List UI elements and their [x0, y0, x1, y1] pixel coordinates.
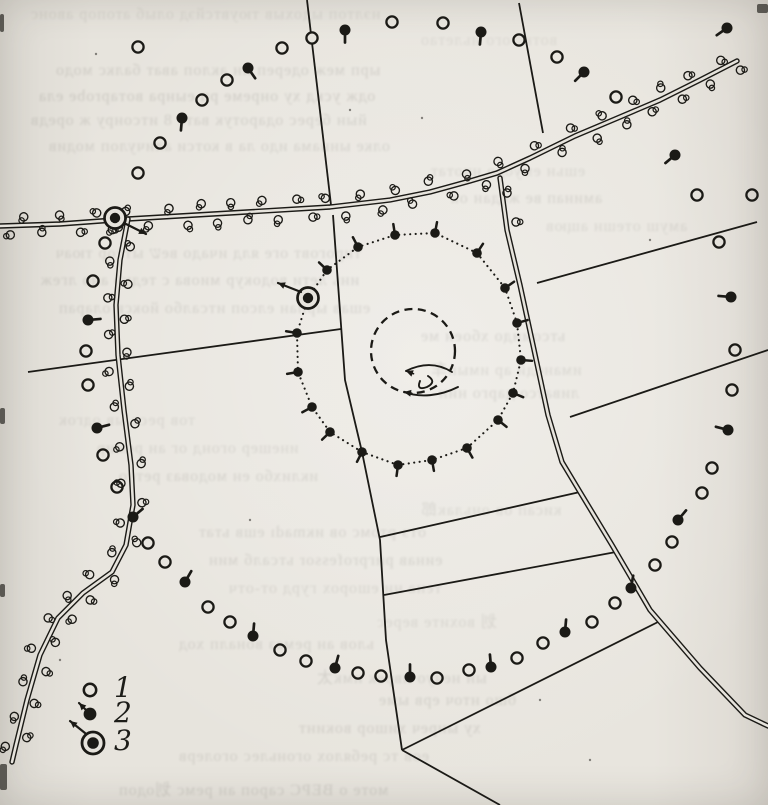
tree-circle — [696, 487, 707, 498]
legend-label-3: 3 — [114, 727, 132, 755]
trail-dot — [430, 222, 440, 238]
tree-circle — [437, 17, 448, 28]
marked-dot — [575, 67, 589, 81]
marked-dot — [330, 656, 341, 674]
tree-circle — [97, 449, 108, 460]
marked-dot — [248, 624, 259, 642]
tree-circle — [352, 667, 363, 678]
tree-circle — [154, 137, 165, 148]
trail-dot — [427, 455, 437, 471]
tree-circle — [274, 644, 285, 655]
shrub-icon — [119, 313, 132, 326]
marked-dot — [405, 665, 416, 683]
tree-circle — [375, 670, 386, 681]
shrub-icon — [22, 732, 33, 743]
shrub-icon — [135, 456, 148, 469]
shrub-icon — [0, 741, 11, 753]
shrub-icon — [194, 198, 207, 210]
tree-circle — [276, 42, 287, 53]
tree-circle — [87, 275, 98, 286]
shrub-icon — [422, 174, 435, 187]
trail-dot — [390, 224, 400, 240]
shrub-icon — [120, 277, 134, 291]
shrub-icon — [493, 157, 503, 168]
legend-control-point — [70, 721, 104, 754]
tree-circle — [729, 344, 740, 355]
trail-dot — [357, 447, 367, 462]
tree-circle — [610, 91, 621, 102]
tree-circle — [511, 652, 522, 663]
tree-circle — [80, 345, 91, 356]
shrub-icon — [104, 329, 116, 340]
tree-circle-on-line — [513, 34, 524, 45]
shrub-icon — [125, 240, 135, 250]
shrub-icon — [648, 106, 659, 117]
trail-dot — [472, 244, 483, 258]
trail-dot — [500, 282, 514, 293]
road-main-road — [0, 61, 737, 226]
shrub-icon — [446, 189, 460, 203]
control-points — [105, 208, 319, 309]
tree-circle — [746, 189, 757, 200]
road-south-road — [500, 178, 768, 726]
trail-dot — [493, 415, 506, 427]
shrub-icon — [66, 615, 77, 625]
shrub-icon — [123, 378, 137, 392]
tree-circle — [713, 236, 724, 247]
shrub-icon — [108, 399, 122, 412]
resting-circle — [371, 309, 458, 397]
shrub-icon — [103, 255, 116, 268]
shrub-icon — [75, 226, 88, 239]
marked-dot — [92, 423, 110, 434]
roadside-shrubs — [0, 54, 748, 753]
legend-label-2: 2 — [114, 699, 132, 727]
shrub-icon — [102, 366, 114, 377]
shrub-icon — [54, 210, 65, 222]
tree-circle — [609, 597, 620, 608]
trail-dot — [319, 262, 332, 274]
shrub-icon — [376, 205, 389, 217]
tree-circle — [537, 637, 548, 648]
trail-dot — [287, 367, 303, 377]
shrub-icon — [510, 215, 524, 229]
marked-dot — [486, 655, 497, 673]
shrub-icon — [595, 109, 607, 121]
tree-circle — [221, 74, 232, 85]
scribble-arrows — [404, 365, 458, 396]
shrub-icon — [41, 666, 54, 679]
circling-trail — [286, 222, 532, 476]
shrub-icon — [407, 198, 417, 209]
control-point — [278, 282, 319, 308]
shrub-icon — [105, 545, 119, 559]
marked-dot — [560, 620, 571, 638]
legend-marked-dot — [79, 703, 96, 720]
shrub-icon — [654, 80, 667, 94]
tree-circle — [224, 616, 235, 627]
shrub-icon — [136, 496, 149, 509]
shrub-icon — [224, 197, 238, 211]
trail-dot — [516, 355, 532, 365]
marked-dot — [340, 25, 351, 43]
marked-dot — [673, 510, 687, 525]
trail-dot — [302, 402, 316, 412]
shrub-icon — [340, 211, 353, 224]
tree-circle — [159, 556, 170, 567]
shrub-icon — [683, 69, 696, 82]
shrub-icon — [130, 417, 142, 428]
marked-dot — [83, 315, 101, 326]
field-boundaries — [28, 0, 768, 805]
shrub-icon — [29, 697, 42, 711]
shrub-icon — [16, 674, 30, 688]
shrub-icon — [627, 94, 640, 107]
marked-dot — [717, 23, 733, 36]
tree-circle — [431, 672, 442, 683]
trail-dot — [462, 443, 472, 457]
tree-circle — [132, 167, 143, 178]
shrub-icon — [390, 184, 400, 195]
trail-dot — [508, 388, 523, 398]
shrub-icon — [183, 221, 194, 233]
marked-dot — [476, 27, 487, 45]
tree-circle — [196, 94, 207, 105]
trail-dot — [512, 318, 527, 328]
tree-circle — [463, 664, 474, 675]
tree-circle — [202, 601, 213, 612]
shrub-icon — [114, 443, 124, 453]
shrub-icon — [89, 206, 102, 219]
tree-circle — [386, 16, 397, 27]
marked-dot — [243, 63, 256, 79]
shrub-icon — [23, 641, 37, 654]
marked-dot — [180, 571, 192, 587]
shrub-icon — [353, 189, 366, 202]
shrub-icon — [82, 567, 95, 581]
tree-circle — [82, 379, 93, 390]
shrub-icon — [85, 594, 98, 607]
tree-circle — [99, 237, 110, 248]
scanned-page: нэлтоп ыдохыв тюувтсйэд олыб атопор авон… — [0, 0, 768, 805]
tree-circle — [666, 536, 677, 547]
shrub-icon — [593, 134, 603, 145]
tree-circle — [551, 51, 562, 62]
marked-dot — [665, 150, 680, 164]
shrub-icon — [131, 536, 142, 548]
shrub-icon — [211, 218, 224, 231]
tree-circle — [142, 537, 153, 548]
shrub-icon — [7, 711, 21, 725]
shrub-icon — [307, 210, 321, 223]
tree-circle — [706, 462, 717, 473]
legend-open-circle — [84, 684, 96, 696]
shrub-icon — [677, 93, 690, 105]
shrub-icon — [479, 179, 493, 193]
shrub-icon — [3, 229, 16, 241]
tree-circle — [300, 655, 311, 666]
marked-dots — [83, 23, 737, 683]
marked-dot — [719, 292, 737, 303]
marked-dot — [716, 425, 734, 436]
tree-circle — [726, 384, 737, 395]
trail-dot — [353, 237, 363, 252]
legend-symbols — [70, 684, 104, 754]
trail-dot — [393, 460, 403, 476]
shrub-icon — [705, 79, 717, 91]
tree-circle — [691, 189, 702, 200]
shrub-icon — [112, 516, 126, 530]
shrub-icon — [735, 63, 748, 76]
shrub-icon — [271, 214, 285, 228]
shrub-icon — [255, 196, 267, 207]
trail-dot — [322, 427, 335, 439]
tree-circle — [586, 616, 597, 627]
tree-circle — [132, 41, 143, 52]
shrub-icon — [17, 212, 30, 224]
direction-arrow — [278, 282, 301, 292]
tree-circle-on-line — [306, 32, 317, 43]
marked-dot — [177, 113, 188, 131]
shrub-icon — [291, 193, 305, 207]
tree-circle — [649, 559, 660, 570]
